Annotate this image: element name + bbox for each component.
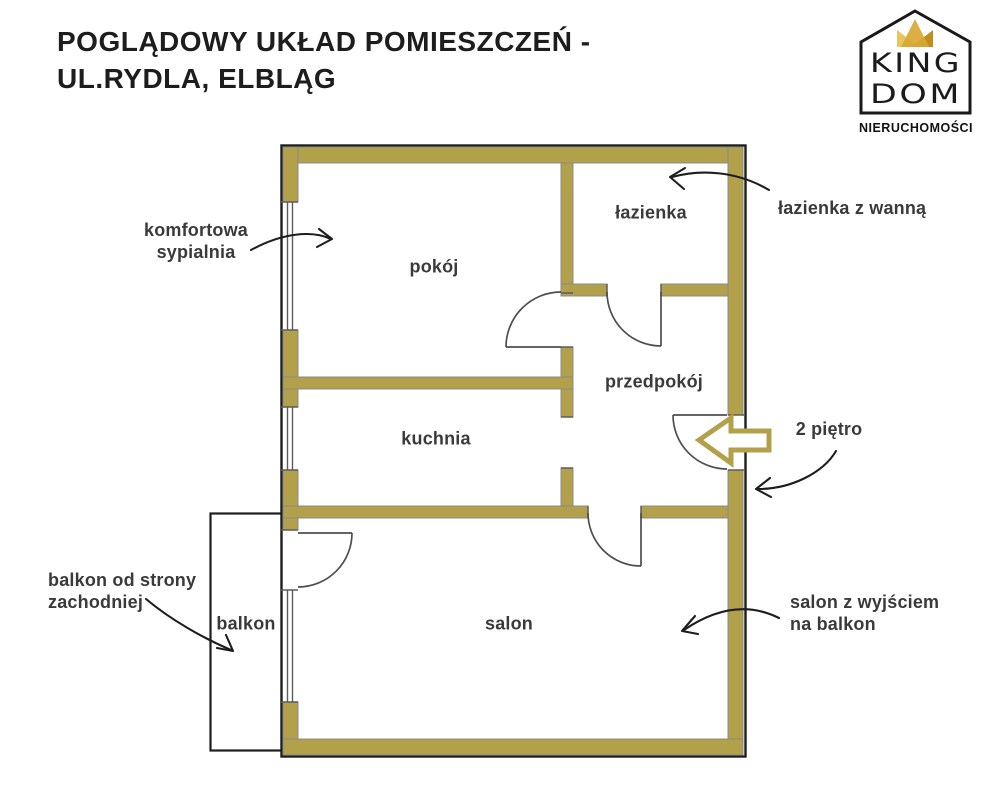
floor-plan-drawing (0, 0, 982, 800)
annotation-bedroom-line1: komfortowa (144, 219, 248, 241)
annotation-balcony-line2: zachodniej (48, 591, 196, 613)
annotation-balcony-line1: balkon od strony (48, 569, 196, 591)
annotation-bathroom: łazienka z wanną (778, 197, 926, 219)
apartment-outer-border (282, 146, 746, 757)
annotation-balcony: balkon od strony zachodniej (48, 569, 196, 613)
annotation-living: salon z wyjściem na balkon (790, 591, 939, 635)
annotation-bedroom-line2: sypialnia (144, 241, 248, 263)
room-label-balkon: balkon (216, 614, 275, 635)
room-label-pokoj: pokój (410, 257, 459, 278)
floor-annotation-arrow-icon (756, 451, 836, 497)
room-label-lazienka: łazienka (615, 203, 687, 224)
room-label-kuchnia: kuchnia (401, 429, 470, 450)
annotation-bedroom: komfortowa sypialnia (144, 219, 248, 263)
annotation-living-line2: na balkon (790, 613, 939, 635)
annotation-floor: 2 piętro (796, 418, 863, 440)
annotation-living-line1: salon z wyjściem (790, 591, 939, 613)
floor-plan-page: POGLĄDOWY UKŁAD POMIESZCZEŃ - UL.RYDLA, … (0, 0, 982, 800)
room-label-przedpokoj: przedpokój (605, 372, 703, 393)
room-label-salon: salon (485, 614, 533, 635)
